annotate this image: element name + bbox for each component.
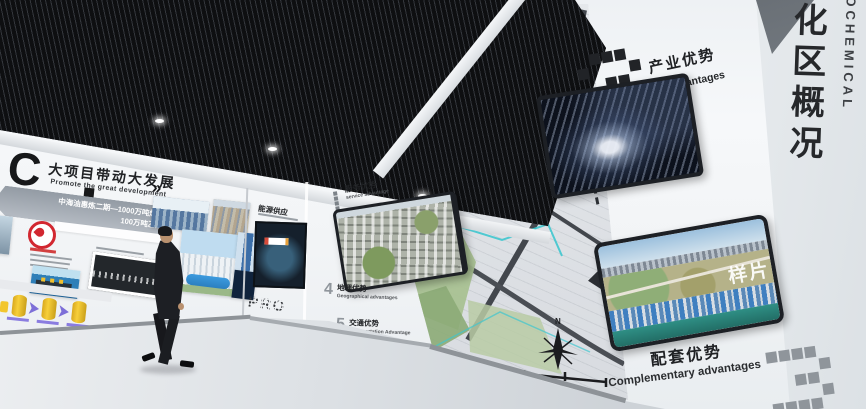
mounted-screen-night-city xyxy=(536,73,704,200)
purple-arrow-icon xyxy=(28,302,39,315)
photo-edge-partial xyxy=(0,215,13,254)
cnooc-logo xyxy=(27,220,58,251)
advantage-4-en: Geographical advantages xyxy=(337,293,398,301)
purple-base-bar xyxy=(7,317,29,322)
purple-arrow-icon xyxy=(58,305,69,318)
person-hand xyxy=(178,303,184,310)
red-caption-bar xyxy=(30,247,56,253)
recess-display-screen xyxy=(253,221,307,289)
screen-sign xyxy=(264,237,288,245)
exhibition-hall-rendering: 化区概况 ROCHEMICAL N xyxy=(0,0,866,409)
advantage-item-4: 4 地理优势 Geographical advantages xyxy=(324,282,398,302)
pixel-digit-2 xyxy=(575,55,588,68)
ceiling-light xyxy=(155,119,164,123)
cylinder xyxy=(71,300,87,323)
vessel-cranes xyxy=(41,277,45,281)
ceiling-light xyxy=(268,147,277,151)
mounted-screen-industrial-park: 样片 xyxy=(593,214,785,353)
compass-north-label: N xyxy=(555,317,561,326)
pixel-digit-1 xyxy=(333,191,338,196)
cylinder xyxy=(11,294,27,317)
pixel-digit-3 xyxy=(765,351,777,363)
purple-base-bar xyxy=(37,320,59,325)
dotted-letters: PRO xyxy=(247,293,288,315)
cylinder xyxy=(41,297,57,320)
person-silhouette xyxy=(140,227,200,375)
left-wall-logo: C xyxy=(6,144,44,193)
advantage-4-number: 4 xyxy=(324,282,333,298)
right-wall-vertical-title-cn: 化区概况 xyxy=(785,1,825,166)
person-back-shoe xyxy=(141,352,155,362)
person-hair xyxy=(158,226,172,236)
yellow-icon xyxy=(0,301,9,313)
